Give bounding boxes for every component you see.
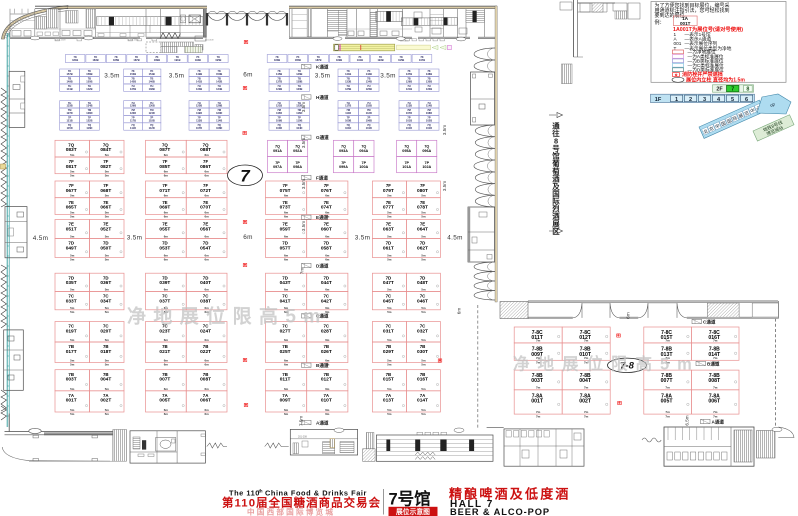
svg-text:001T: 001T bbox=[531, 399, 544, 405]
svg-text:5m: 5m bbox=[105, 387, 110, 391]
svg-text:137B: 137B bbox=[406, 72, 412, 76]
svg-text:5: 5 bbox=[731, 97, 734, 103]
svg-text:024T: 024T bbox=[200, 328, 211, 334]
svg-text:7B: 7B bbox=[323, 344, 329, 349]
svg-text:7E: 7E bbox=[162, 222, 167, 227]
svg-text:7E: 7E bbox=[69, 200, 74, 205]
svg-text:111D: 111D bbox=[345, 111, 351, 115]
svg-text:185B: 185B bbox=[113, 58, 119, 62]
svg-text:7C: 7C bbox=[323, 294, 329, 299]
svg-text:7m: 7m bbox=[584, 339, 589, 343]
svg-text:116D: 116D bbox=[86, 126, 92, 130]
svg-text:7D: 7D bbox=[420, 241, 426, 246]
svg-text:093A: 093A bbox=[339, 149, 348, 153]
svg-text:3.5m: 3.5m bbox=[355, 235, 370, 242]
svg-text:7D: 7D bbox=[103, 275, 109, 280]
svg-text:125B: 125B bbox=[196, 104, 202, 108]
svg-text:5m: 5m bbox=[105, 153, 110, 157]
svg-text:142B: 142B bbox=[86, 87, 92, 91]
svg-text:1F: 1F bbox=[655, 97, 662, 103]
svg-text:007T: 007T bbox=[159, 377, 170, 383]
svg-text:6m: 6m bbox=[626, 312, 631, 319]
svg-text:7号馆: 7号馆 bbox=[389, 489, 431, 509]
svg-text:7B: 7B bbox=[323, 372, 329, 377]
svg-text:193B: 193B bbox=[195, 58, 201, 62]
svg-text:3.5m: 3.5m bbox=[315, 73, 330, 80]
svg-text:031T: 031T bbox=[383, 328, 394, 334]
svg-text:7D: 7D bbox=[323, 241, 329, 246]
svg-text:7A: 7A bbox=[162, 393, 168, 398]
svg-text:100A: 100A bbox=[359, 165, 368, 169]
svg-text:7m: 7m bbox=[713, 386, 718, 390]
svg-text:045T: 045T bbox=[383, 298, 394, 304]
svg-text:7A: 7A bbox=[420, 393, 426, 398]
svg-text:6m: 6m bbox=[164, 153, 169, 157]
svg-text:092A: 092A bbox=[293, 149, 302, 153]
svg-text:6m: 6m bbox=[325, 235, 330, 239]
svg-text:050T: 050T bbox=[100, 245, 111, 251]
svg-text:017T: 017T bbox=[66, 349, 77, 355]
svg-text:※: ※ bbox=[439, 358, 442, 363]
svg-text:113B: 113B bbox=[196, 118, 202, 122]
svg-text:7E: 7E bbox=[324, 200, 329, 205]
svg-text:7B: 7B bbox=[68, 344, 74, 349]
svg-text:114B: 114B bbox=[426, 104, 432, 108]
svg-text:5m: 5m bbox=[387, 194, 392, 198]
svg-text:001T: 001T bbox=[66, 398, 77, 404]
svg-text:※: ※ bbox=[244, 357, 247, 362]
svg-text:7D: 7D bbox=[103, 241, 109, 246]
svg-text:7.5m: 7.5m bbox=[299, 416, 304, 426]
svg-text:146B: 146B bbox=[296, 72, 302, 76]
svg-text:006T: 006T bbox=[708, 399, 721, 405]
svg-text:026T: 026T bbox=[321, 349, 332, 355]
svg-text:BEER & ALCO-POP: BEER & ALCO-POP bbox=[450, 507, 550, 516]
svg-text:005T: 005T bbox=[159, 398, 170, 404]
svg-text:6m: 6m bbox=[325, 387, 330, 391]
svg-text:102B: 102B bbox=[426, 118, 432, 122]
svg-text:6m: 6m bbox=[284, 338, 289, 342]
svg-text:059T: 059T bbox=[280, 226, 291, 232]
svg-text:047T: 047T bbox=[383, 280, 394, 286]
svg-text:138B: 138B bbox=[296, 80, 302, 84]
svg-text:101B: 101B bbox=[406, 118, 412, 122]
svg-text:5m: 5m bbox=[70, 310, 75, 314]
svg-text:020T: 020T bbox=[100, 328, 111, 334]
svg-text:121B: 121B bbox=[276, 104, 282, 108]
svg-text:7D: 7D bbox=[282, 275, 288, 280]
svg-text:128D: 128D bbox=[86, 111, 92, 115]
svg-text:010T: 010T bbox=[321, 398, 332, 404]
svg-text:7Q: 7Q bbox=[103, 143, 109, 148]
svg-text:028T: 028T bbox=[321, 328, 332, 334]
svg-text:107D: 107D bbox=[196, 126, 202, 130]
svg-text:5m: 5m bbox=[70, 194, 75, 198]
svg-text:7A: 7A bbox=[103, 393, 109, 398]
svg-text:133B: 133B bbox=[345, 80, 351, 84]
svg-text:5m: 5m bbox=[70, 363, 75, 367]
svg-text:122B: 122B bbox=[426, 87, 432, 91]
svg-text:191B: 191B bbox=[357, 58, 363, 62]
svg-text:185B: 185B bbox=[295, 58, 301, 62]
svg-text:2: 2 bbox=[689, 97, 692, 103]
svg-text:7E: 7E bbox=[386, 200, 391, 205]
svg-text:046T: 046T bbox=[417, 298, 428, 304]
svg-text:110B: 110B bbox=[296, 118, 302, 122]
svg-text:111D: 111D bbox=[130, 126, 136, 130]
svg-text:060T: 060T bbox=[321, 226, 332, 232]
svg-text:7m: 7m bbox=[713, 356, 718, 360]
svg-text:6m: 6m bbox=[284, 235, 289, 239]
svg-text:5m: 5m bbox=[421, 310, 426, 314]
svg-text:5m: 5m bbox=[421, 194, 426, 198]
svg-text:5m: 5m bbox=[387, 310, 392, 314]
svg-text:7m: 7m bbox=[584, 386, 589, 390]
svg-text:7C: 7C bbox=[103, 324, 109, 329]
svg-text:122B: 122B bbox=[86, 118, 92, 122]
svg-text:4.5m: 4.5m bbox=[447, 235, 462, 242]
svg-text:018T: 018T bbox=[100, 349, 111, 355]
svg-text:129B: 129B bbox=[406, 80, 412, 84]
svg-text:7E: 7E bbox=[324, 222, 329, 227]
svg-text:062T: 062T bbox=[417, 245, 428, 251]
svg-text:113B: 113B bbox=[406, 104, 412, 108]
svg-text:095A: 095A bbox=[402, 149, 411, 153]
svg-text:041T: 041T bbox=[280, 298, 291, 304]
svg-text:例：: 例： bbox=[655, 19, 665, 26]
svg-text:7D: 7D bbox=[162, 241, 168, 246]
svg-text:China Food & Drinks Fair: China Food & Drinks Fair bbox=[265, 489, 367, 498]
svg-text:3.5m: 3.5m bbox=[301, 179, 306, 189]
svg-text:094A: 094A bbox=[359, 149, 368, 153]
svg-text:7F: 7F bbox=[420, 183, 425, 188]
svg-text:101D: 101D bbox=[406, 126, 412, 130]
svg-text:C通道: C通道 bbox=[703, 318, 716, 325]
svg-text:7B: 7B bbox=[203, 372, 209, 377]
svg-text:6m: 6m bbox=[205, 338, 210, 342]
svg-text:025T: 025T bbox=[280, 349, 291, 355]
svg-text:3.5m: 3.5m bbox=[442, 125, 447, 135]
svg-text:7F: 7F bbox=[103, 183, 108, 188]
svg-text:B01-B08: B01-B08 bbox=[205, 40, 214, 42]
svg-text:7A: 7A bbox=[282, 393, 288, 398]
svg-text:7Q: 7Q bbox=[162, 143, 168, 148]
svg-text:5m: 5m bbox=[70, 412, 75, 416]
svg-text:3.5m: 3.5m bbox=[169, 73, 184, 80]
svg-text:7A: 7A bbox=[386, 393, 392, 398]
svg-text:117B: 117B bbox=[345, 104, 351, 108]
svg-text:001T: 001T bbox=[680, 21, 691, 26]
svg-text:7m: 7m bbox=[536, 415, 541, 419]
svg-text:7A: 7A bbox=[323, 393, 329, 398]
svg-text:057T: 057T bbox=[280, 245, 291, 251]
svg-text:6m: 6m bbox=[284, 288, 289, 292]
svg-text:091A: 091A bbox=[273, 149, 282, 153]
svg-text:5m: 5m bbox=[387, 338, 392, 342]
svg-text:114B: 114B bbox=[216, 118, 222, 122]
svg-text:6m: 6m bbox=[284, 258, 289, 262]
svg-text:101A: 101A bbox=[402, 165, 411, 169]
svg-text:019T: 019T bbox=[66, 328, 77, 334]
svg-text:3.5m: 3.5m bbox=[380, 73, 395, 80]
svg-text:2F: 2F bbox=[716, 87, 723, 93]
svg-text:106B: 106B bbox=[366, 118, 372, 122]
svg-text:7D: 7D bbox=[68, 275, 74, 280]
svg-text:7B: 7B bbox=[162, 344, 168, 349]
svg-text:3.5m: 3.5m bbox=[104, 73, 119, 80]
svg-text:7D: 7D bbox=[203, 241, 209, 246]
svg-text:3: 3 bbox=[703, 97, 706, 103]
svg-text:5m: 5m bbox=[105, 412, 110, 416]
svg-text:7m: 7m bbox=[713, 410, 718, 414]
svg-text:7A: 7A bbox=[203, 393, 209, 398]
svg-text:125B: 125B bbox=[345, 87, 351, 91]
svg-text:5m: 5m bbox=[105, 194, 110, 198]
svg-text:1: 1 bbox=[675, 97, 678, 103]
svg-text:004T: 004T bbox=[100, 377, 111, 383]
svg-text:6m: 6m bbox=[164, 174, 169, 178]
svg-text:7: 7 bbox=[240, 167, 251, 186]
svg-text:013T: 013T bbox=[383, 398, 394, 404]
svg-text:5m: 5m bbox=[105, 288, 110, 292]
svg-text:7C: 7C bbox=[203, 294, 209, 299]
svg-text:042T: 042T bbox=[321, 298, 332, 304]
svg-text:6m: 6m bbox=[164, 338, 169, 342]
svg-text:3.5m: 3.5m bbox=[301, 102, 306, 112]
svg-text:7F: 7F bbox=[69, 183, 74, 188]
svg-text:153B: 153B bbox=[130, 72, 136, 76]
svg-text:7D: 7D bbox=[420, 275, 426, 280]
svg-text:5m: 5m bbox=[387, 387, 392, 391]
svg-text:5m: 5m bbox=[387, 258, 392, 262]
svg-text:※: ※ bbox=[244, 262, 247, 267]
svg-text:141B: 141B bbox=[196, 80, 202, 84]
svg-text:158B: 158B bbox=[86, 72, 92, 76]
svg-text:004T: 004T bbox=[579, 378, 592, 384]
svg-text:112D: 112D bbox=[149, 126, 155, 130]
svg-text:5m: 5m bbox=[70, 235, 75, 239]
svg-text:101D: 101D bbox=[366, 126, 372, 130]
svg-text:7E: 7E bbox=[420, 222, 425, 227]
svg-text:063T: 063T bbox=[383, 226, 394, 232]
svg-text:032T: 032T bbox=[417, 328, 428, 334]
svg-text:7C: 7C bbox=[386, 294, 392, 299]
svg-text:5m: 5m bbox=[70, 215, 75, 219]
svg-text:7m: 7m bbox=[300, 268, 305, 275]
svg-text:183B: 183B bbox=[274, 58, 280, 62]
svg-text:7F: 7F bbox=[103, 159, 108, 164]
svg-text:195B: 195B bbox=[398, 58, 404, 62]
svg-text:5m: 5m bbox=[387, 215, 392, 219]
svg-text:7C: 7C bbox=[386, 324, 392, 329]
svg-text:006T: 006T bbox=[200, 398, 211, 404]
svg-text:7m: 7m bbox=[665, 339, 670, 343]
svg-text:7C: 7C bbox=[103, 294, 109, 299]
svg-text:7B: 7B bbox=[203, 344, 209, 349]
svg-text:141B: 141B bbox=[66, 87, 72, 91]
svg-text:6m: 6m bbox=[164, 215, 169, 219]
svg-text:126B: 126B bbox=[216, 104, 222, 108]
svg-text:7m: 7m bbox=[665, 386, 670, 390]
svg-text:033T: 033T bbox=[66, 298, 77, 304]
svg-text:7F: 7F bbox=[162, 183, 167, 188]
svg-text:6m: 6m bbox=[284, 363, 289, 367]
svg-text:7D: 7D bbox=[323, 275, 329, 280]
svg-text:052T: 052T bbox=[100, 226, 111, 232]
svg-text:054T: 054T bbox=[200, 245, 211, 251]
svg-text:145B: 145B bbox=[276, 72, 282, 76]
svg-text:064T: 064T bbox=[417, 226, 428, 232]
svg-text:7C: 7C bbox=[420, 294, 426, 299]
svg-text:※: ※ bbox=[618, 400, 621, 405]
svg-text:7E: 7E bbox=[69, 222, 74, 227]
svg-text:034T: 034T bbox=[100, 298, 111, 304]
svg-text:中国西部国际博览城: 中国西部国际博览城 bbox=[247, 506, 335, 516]
svg-text:053T: 053T bbox=[159, 245, 170, 251]
svg-text:※: ※ bbox=[243, 130, 246, 135]
svg-text:096A: 096A bbox=[422, 149, 431, 153]
svg-text:7B: 7B bbox=[386, 344, 392, 349]
svg-text:181B: 181B bbox=[72, 58, 78, 62]
svg-text:净地展位限高5m: 净地展位限高5m bbox=[127, 305, 328, 328]
svg-text:※: ※ bbox=[244, 85, 247, 90]
svg-text:145B: 145B bbox=[130, 80, 136, 84]
svg-text:6m: 6m bbox=[205, 288, 210, 292]
svg-text:7m: 7m bbox=[665, 415, 670, 419]
svg-text:F通道: F通道 bbox=[316, 174, 328, 181]
svg-text:3.5m: 3.5m bbox=[127, 235, 142, 242]
svg-text:B09-B16: B09-B16 bbox=[400, 41, 409, 43]
svg-text:7F: 7F bbox=[203, 183, 208, 188]
svg-text:区: 区 bbox=[552, 227, 560, 236]
svg-text:150B: 150B bbox=[216, 72, 222, 76]
svg-text:5m: 5m bbox=[387, 235, 392, 239]
svg-text:012T: 012T bbox=[321, 377, 332, 383]
svg-text:097A: 097A bbox=[273, 165, 282, 169]
svg-text:3.5m: 3.5m bbox=[301, 221, 306, 231]
svg-text:7C: 7C bbox=[162, 294, 168, 299]
svg-text:126B: 126B bbox=[366, 87, 372, 91]
svg-text:6m: 6m bbox=[243, 72, 252, 79]
svg-text:157B: 157B bbox=[66, 72, 72, 76]
svg-text:7m: 7m bbox=[536, 339, 541, 343]
svg-text:039T: 039T bbox=[159, 280, 170, 286]
svg-text:051T: 051T bbox=[66, 226, 77, 232]
svg-text:※: ※ bbox=[617, 333, 620, 338]
svg-text:119D: 119D bbox=[196, 111, 202, 115]
svg-text:123D: 123D bbox=[130, 111, 136, 115]
svg-text:137B: 137B bbox=[130, 87, 136, 91]
svg-text:044T: 044T bbox=[321, 280, 332, 286]
svg-text:134B: 134B bbox=[86, 104, 92, 108]
svg-text:6m: 6m bbox=[457, 308, 462, 315]
svg-text:058T: 058T bbox=[321, 245, 332, 251]
svg-text:※: ※ bbox=[244, 219, 247, 224]
svg-text:8: 8 bbox=[746, 87, 749, 93]
svg-text:189B: 189B bbox=[154, 58, 160, 62]
svg-text:5m: 5m bbox=[387, 363, 392, 367]
svg-text:7B: 7B bbox=[282, 344, 288, 349]
svg-text:7E: 7E bbox=[203, 222, 208, 227]
svg-text:6m: 6m bbox=[205, 215, 210, 219]
svg-text:5m: 5m bbox=[105, 174, 110, 178]
svg-text:5m: 5m bbox=[421, 235, 426, 239]
svg-text:6m: 6m bbox=[325, 258, 330, 262]
svg-text:129B: 129B bbox=[276, 87, 282, 91]
svg-text:5m: 5m bbox=[387, 412, 392, 416]
svg-text:3.5m: 3.5m bbox=[442, 181, 447, 191]
svg-text:118B: 118B bbox=[366, 104, 372, 108]
svg-text:105B: 105B bbox=[345, 118, 351, 122]
svg-text:049T: 049T bbox=[66, 245, 77, 251]
svg-text:7C: 7C bbox=[68, 294, 74, 299]
svg-text:5m: 5m bbox=[70, 153, 75, 157]
svg-text:130B: 130B bbox=[426, 80, 432, 84]
svg-text:134B: 134B bbox=[366, 80, 372, 84]
svg-text:A通道: A通道 bbox=[316, 419, 329, 426]
svg-text:101D: 101D bbox=[345, 126, 351, 130]
svg-text:6.5m: 6.5m bbox=[685, 415, 690, 425]
svg-text:146B: 146B bbox=[149, 80, 155, 84]
svg-text:5m: 5m bbox=[105, 215, 110, 219]
svg-text:115D: 115D bbox=[276, 111, 282, 115]
svg-text:7: 7 bbox=[731, 87, 734, 93]
svg-text:7m: 7m bbox=[584, 415, 589, 419]
svg-text:007T: 007T bbox=[661, 378, 674, 384]
svg-text:A通道: A通道 bbox=[712, 418, 725, 425]
svg-text:016T: 016T bbox=[417, 377, 428, 383]
svg-text:112D: 112D bbox=[366, 111, 372, 115]
svg-text:6m: 6m bbox=[325, 338, 330, 342]
svg-text:127D: 127D bbox=[66, 111, 72, 115]
svg-text:101D: 101D bbox=[426, 126, 432, 130]
svg-text:7m: 7m bbox=[536, 386, 541, 390]
svg-text:102A: 102A bbox=[422, 165, 431, 169]
svg-text:142B: 142B bbox=[216, 80, 222, 84]
svg-text:6m: 6m bbox=[325, 288, 330, 292]
svg-text:6m: 6m bbox=[164, 363, 169, 367]
svg-text:138B: 138B bbox=[149, 87, 155, 91]
svg-text:净地展位限高5m: 净地展位限高5m bbox=[513, 354, 700, 374]
svg-text:197B: 197B bbox=[419, 58, 425, 62]
svg-text:6m: 6m bbox=[164, 412, 169, 416]
svg-text:6m: 6m bbox=[205, 235, 210, 239]
svg-text:099A: 099A bbox=[339, 165, 348, 169]
svg-text:7F: 7F bbox=[69, 159, 74, 164]
svg-text:1209-1216: 1209-1216 bbox=[128, 40, 139, 42]
svg-text:134B: 134B bbox=[216, 87, 222, 91]
svg-text:061T: 061T bbox=[383, 245, 394, 251]
svg-text:4.5m: 4.5m bbox=[33, 235, 48, 242]
svg-text:6m: 6m bbox=[164, 387, 169, 391]
svg-text:7E: 7E bbox=[282, 222, 287, 227]
svg-text:002T: 002T bbox=[100, 398, 111, 404]
svg-text:142B: 142B bbox=[366, 72, 372, 76]
svg-text:1201-1208: 1201-1208 bbox=[55, 40, 66, 42]
svg-text:6m: 6m bbox=[205, 412, 210, 416]
svg-text:098A: 098A bbox=[293, 165, 302, 169]
svg-text:133B: 133B bbox=[196, 87, 202, 91]
svg-text:7m: 7m bbox=[584, 410, 589, 414]
svg-text:6m: 6m bbox=[205, 194, 210, 198]
svg-text:5m: 5m bbox=[105, 235, 110, 239]
svg-text:7E: 7E bbox=[386, 222, 391, 227]
svg-text:118B: 118B bbox=[149, 118, 155, 122]
svg-text:D通道: D通道 bbox=[316, 262, 329, 269]
svg-text:109B: 109B bbox=[276, 118, 282, 122]
svg-text:149B: 149B bbox=[196, 72, 202, 76]
svg-text:191B: 191B bbox=[174, 58, 180, 62]
